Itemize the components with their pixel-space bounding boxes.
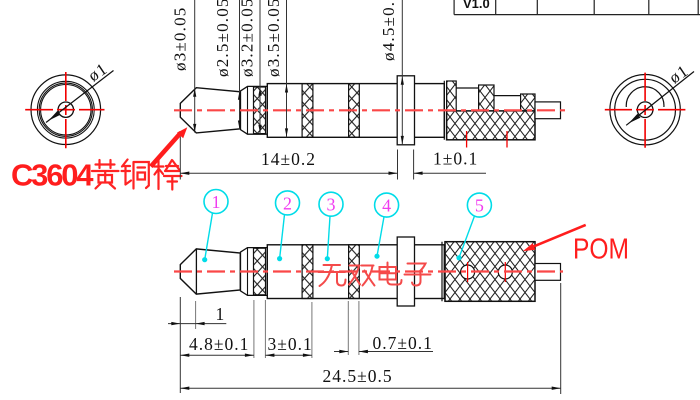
svg-text:POM: POM <box>573 234 629 266</box>
svg-text:1±0.1: 1±0.1 <box>433 149 478 169</box>
svg-text:ø1: ø1 <box>666 61 693 88</box>
svg-text:3: 3 <box>327 195 336 215</box>
svg-text:ø1: ø1 <box>85 59 112 86</box>
svg-text:3±0.1: 3±0.1 <box>268 334 313 354</box>
svg-text:24.5±0.5: 24.5±0.5 <box>323 366 393 386</box>
svg-text:ø3±0.05: ø3±0.05 <box>171 7 190 71</box>
svg-text:V1.0: V1.0 <box>463 0 490 11</box>
svg-text:0.7±0.1: 0.7±0.1 <box>373 333 433 353</box>
svg-text:ø3.5±0.05: ø3.5±0.05 <box>264 0 283 77</box>
svg-text:2: 2 <box>283 193 292 213</box>
svg-text:4.8±0.1: 4.8±0.1 <box>189 334 249 354</box>
svg-text:1: 1 <box>216 304 226 324</box>
svg-text:14±0.2: 14±0.2 <box>261 149 316 169</box>
svg-text:C3604: C3604 <box>11 158 94 193</box>
svg-text:ø4.5±0.1: ø4.5±0.1 <box>379 0 398 61</box>
svg-text:5: 5 <box>475 196 484 216</box>
svg-text:1: 1 <box>212 192 221 212</box>
svg-text:4: 4 <box>382 196 391 216</box>
svg-text:ø2.5±0.05: ø2.5±0.05 <box>213 0 232 77</box>
svg-text:ø3.2±0.05: ø3.2±0.05 <box>238 0 257 77</box>
